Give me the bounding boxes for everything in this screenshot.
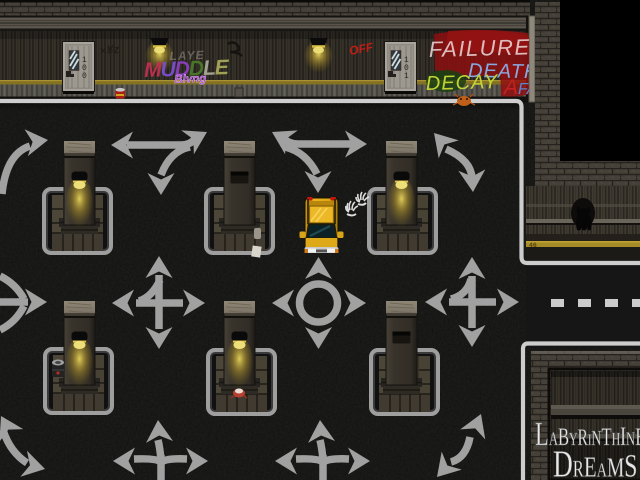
svg-text:DECAY: DECAY <box>426 71 500 95</box>
svg-text:1: 1 <box>404 72 409 81</box>
svg-text:Blvng: Blvng <box>174 73 206 86</box>
svg-text:0: 0 <box>82 72 87 81</box>
svg-text:FAILURE: FAILURE <box>428 34 530 62</box>
svg-text:×¥z: ×¥z <box>99 42 120 58</box>
svg-text:A: A <box>502 76 518 99</box>
